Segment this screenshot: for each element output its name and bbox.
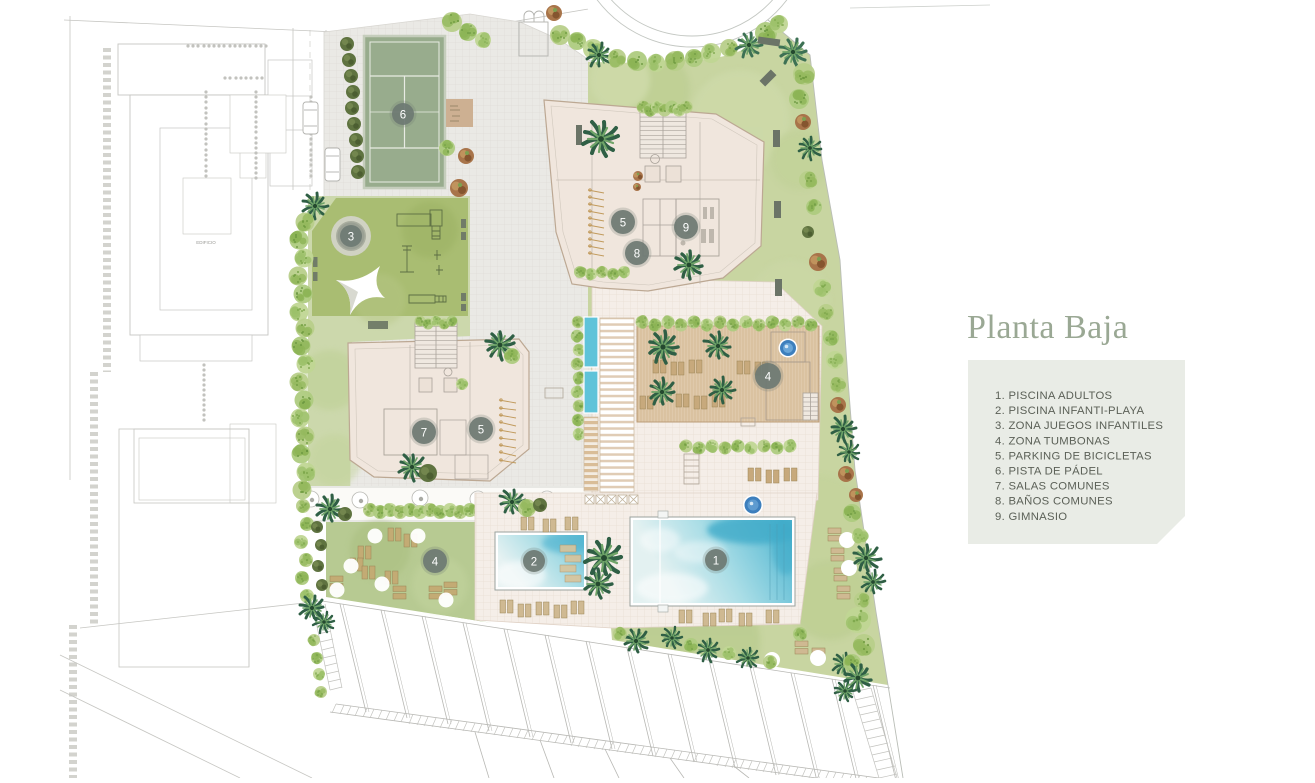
svg-text:4: 4 (432, 557, 439, 569)
svg-text:5: 5 (620, 218, 626, 230)
svg-text:8: 8 (634, 249, 640, 261)
svg-text:1: 1 (713, 556, 719, 568)
svg-text:5: 5 (478, 425, 484, 437)
svg-text:9: 9 (683, 223, 689, 235)
svg-text:2: 2 (531, 557, 537, 569)
svg-text:Planta Baja: Planta Baja (967, 309, 1128, 346)
svg-text:EDIFICIO: EDIFICIO (196, 240, 216, 245)
svg-text:7: 7 (421, 428, 427, 440)
svg-text:3: 3 (348, 232, 354, 244)
svg-text:4: 4 (765, 372, 772, 384)
svg-text:6: 6 (400, 110, 406, 122)
